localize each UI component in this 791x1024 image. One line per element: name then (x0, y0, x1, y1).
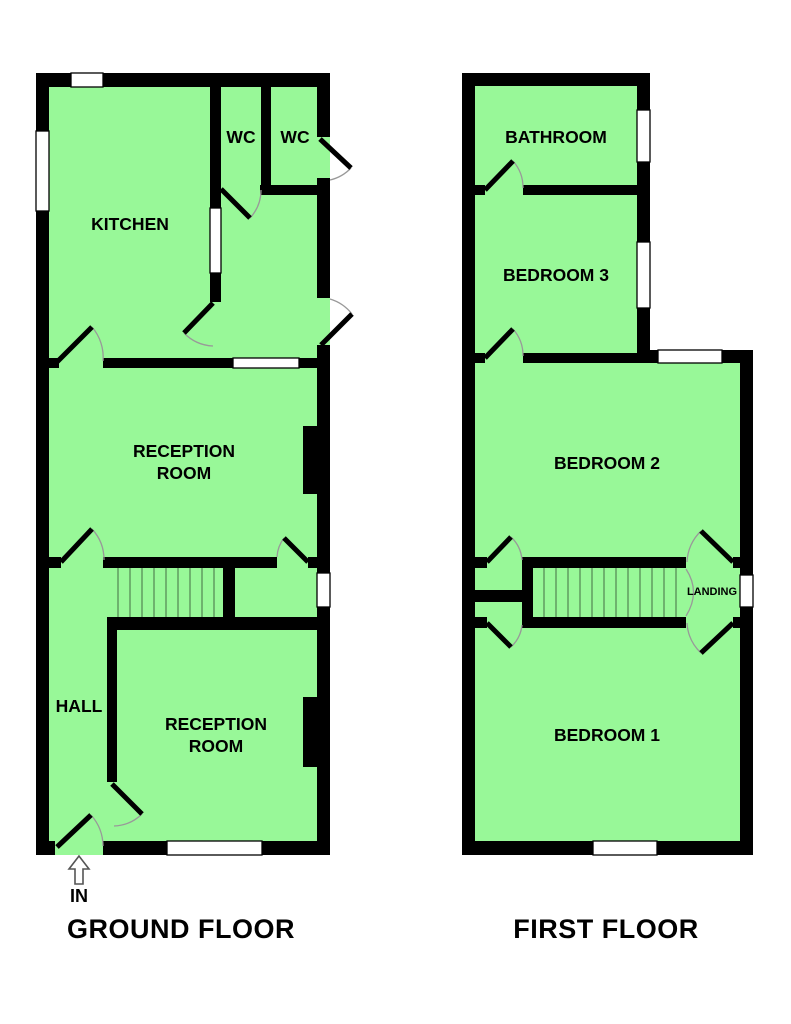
reception-mid-label-line2: ROOM (157, 463, 211, 483)
window (637, 242, 650, 308)
wall-segment (733, 557, 742, 568)
window (637, 110, 650, 162)
wall-segment (103, 358, 221, 368)
entrance-arrow-icon (69, 856, 89, 884)
wall-segment (107, 617, 317, 630)
window (210, 208, 221, 273)
door-arc (330, 168, 351, 180)
kitchen-label: KITCHEN (91, 214, 169, 234)
wall-segment (49, 557, 61, 568)
wall-segment (475, 557, 487, 568)
wall-segment (533, 557, 686, 568)
ground-floor-plan: KITCHEN WC WC RECEPTION ROOM HALL RECEPT… (36, 73, 352, 944)
wall-segment (317, 73, 330, 855)
wall-segment (223, 568, 235, 617)
window (740, 575, 753, 607)
wall-segment (523, 353, 637, 363)
wall-segment (533, 617, 686, 628)
wall-segment (308, 557, 317, 568)
wc-right-label: WC (280, 127, 310, 147)
wall-segment (462, 73, 650, 86)
wall-segment (107, 617, 117, 782)
landing-label: LANDING (687, 586, 737, 598)
door-arc (330, 299, 352, 314)
bedroom1-label: BEDROOM 1 (554, 725, 660, 745)
first-floor-title: FIRST FLOOR (513, 914, 698, 944)
wall-segment (210, 273, 221, 302)
window (233, 358, 299, 368)
chimney-breast (303, 697, 317, 767)
bedroom2-label: BEDROOM 2 (554, 453, 660, 473)
wall-segment (475, 185, 485, 195)
reception-front-label-line2: ROOM (189, 736, 243, 756)
wall-segment (475, 617, 487, 628)
bathroom-label: BATHROOM (505, 127, 607, 147)
reception-front-label-line1: RECEPTION (165, 714, 267, 734)
wall-segment (103, 557, 277, 568)
floorplan-page: KITCHEN WC WC RECEPTION ROOM HALL RECEPT… (0, 0, 791, 1024)
window (317, 573, 330, 607)
ground-floor-title: GROUND FLOOR (67, 914, 295, 944)
window (167, 841, 262, 855)
wall-segment (210, 87, 221, 208)
wall-segment (261, 87, 271, 185)
entrance-label: IN (70, 886, 88, 906)
wc-left-label: WC (226, 127, 256, 147)
window (658, 350, 722, 363)
reception-mid-label-line1: RECEPTION (133, 441, 235, 461)
wall-segment (260, 185, 317, 195)
floorplan-drawing: KITCHEN WC WC RECEPTION ROOM HALL RECEPT… (0, 0, 791, 1024)
wall-segment (462, 73, 475, 855)
chimney-breast (303, 426, 317, 494)
first-floor-plan: BATHROOM BEDROOM 3 BEDROOM 2 LANDING BED… (462, 73, 753, 944)
window (593, 841, 657, 855)
hall-label: HALL (56, 696, 103, 716)
wall-segment (475, 590, 533, 602)
bedroom3-label: BEDROOM 3 (503, 265, 609, 285)
window (71, 73, 103, 87)
wall-segment (733, 617, 742, 628)
window (36, 131, 49, 211)
wall-segment (523, 185, 637, 195)
wall-segment (475, 353, 485, 363)
